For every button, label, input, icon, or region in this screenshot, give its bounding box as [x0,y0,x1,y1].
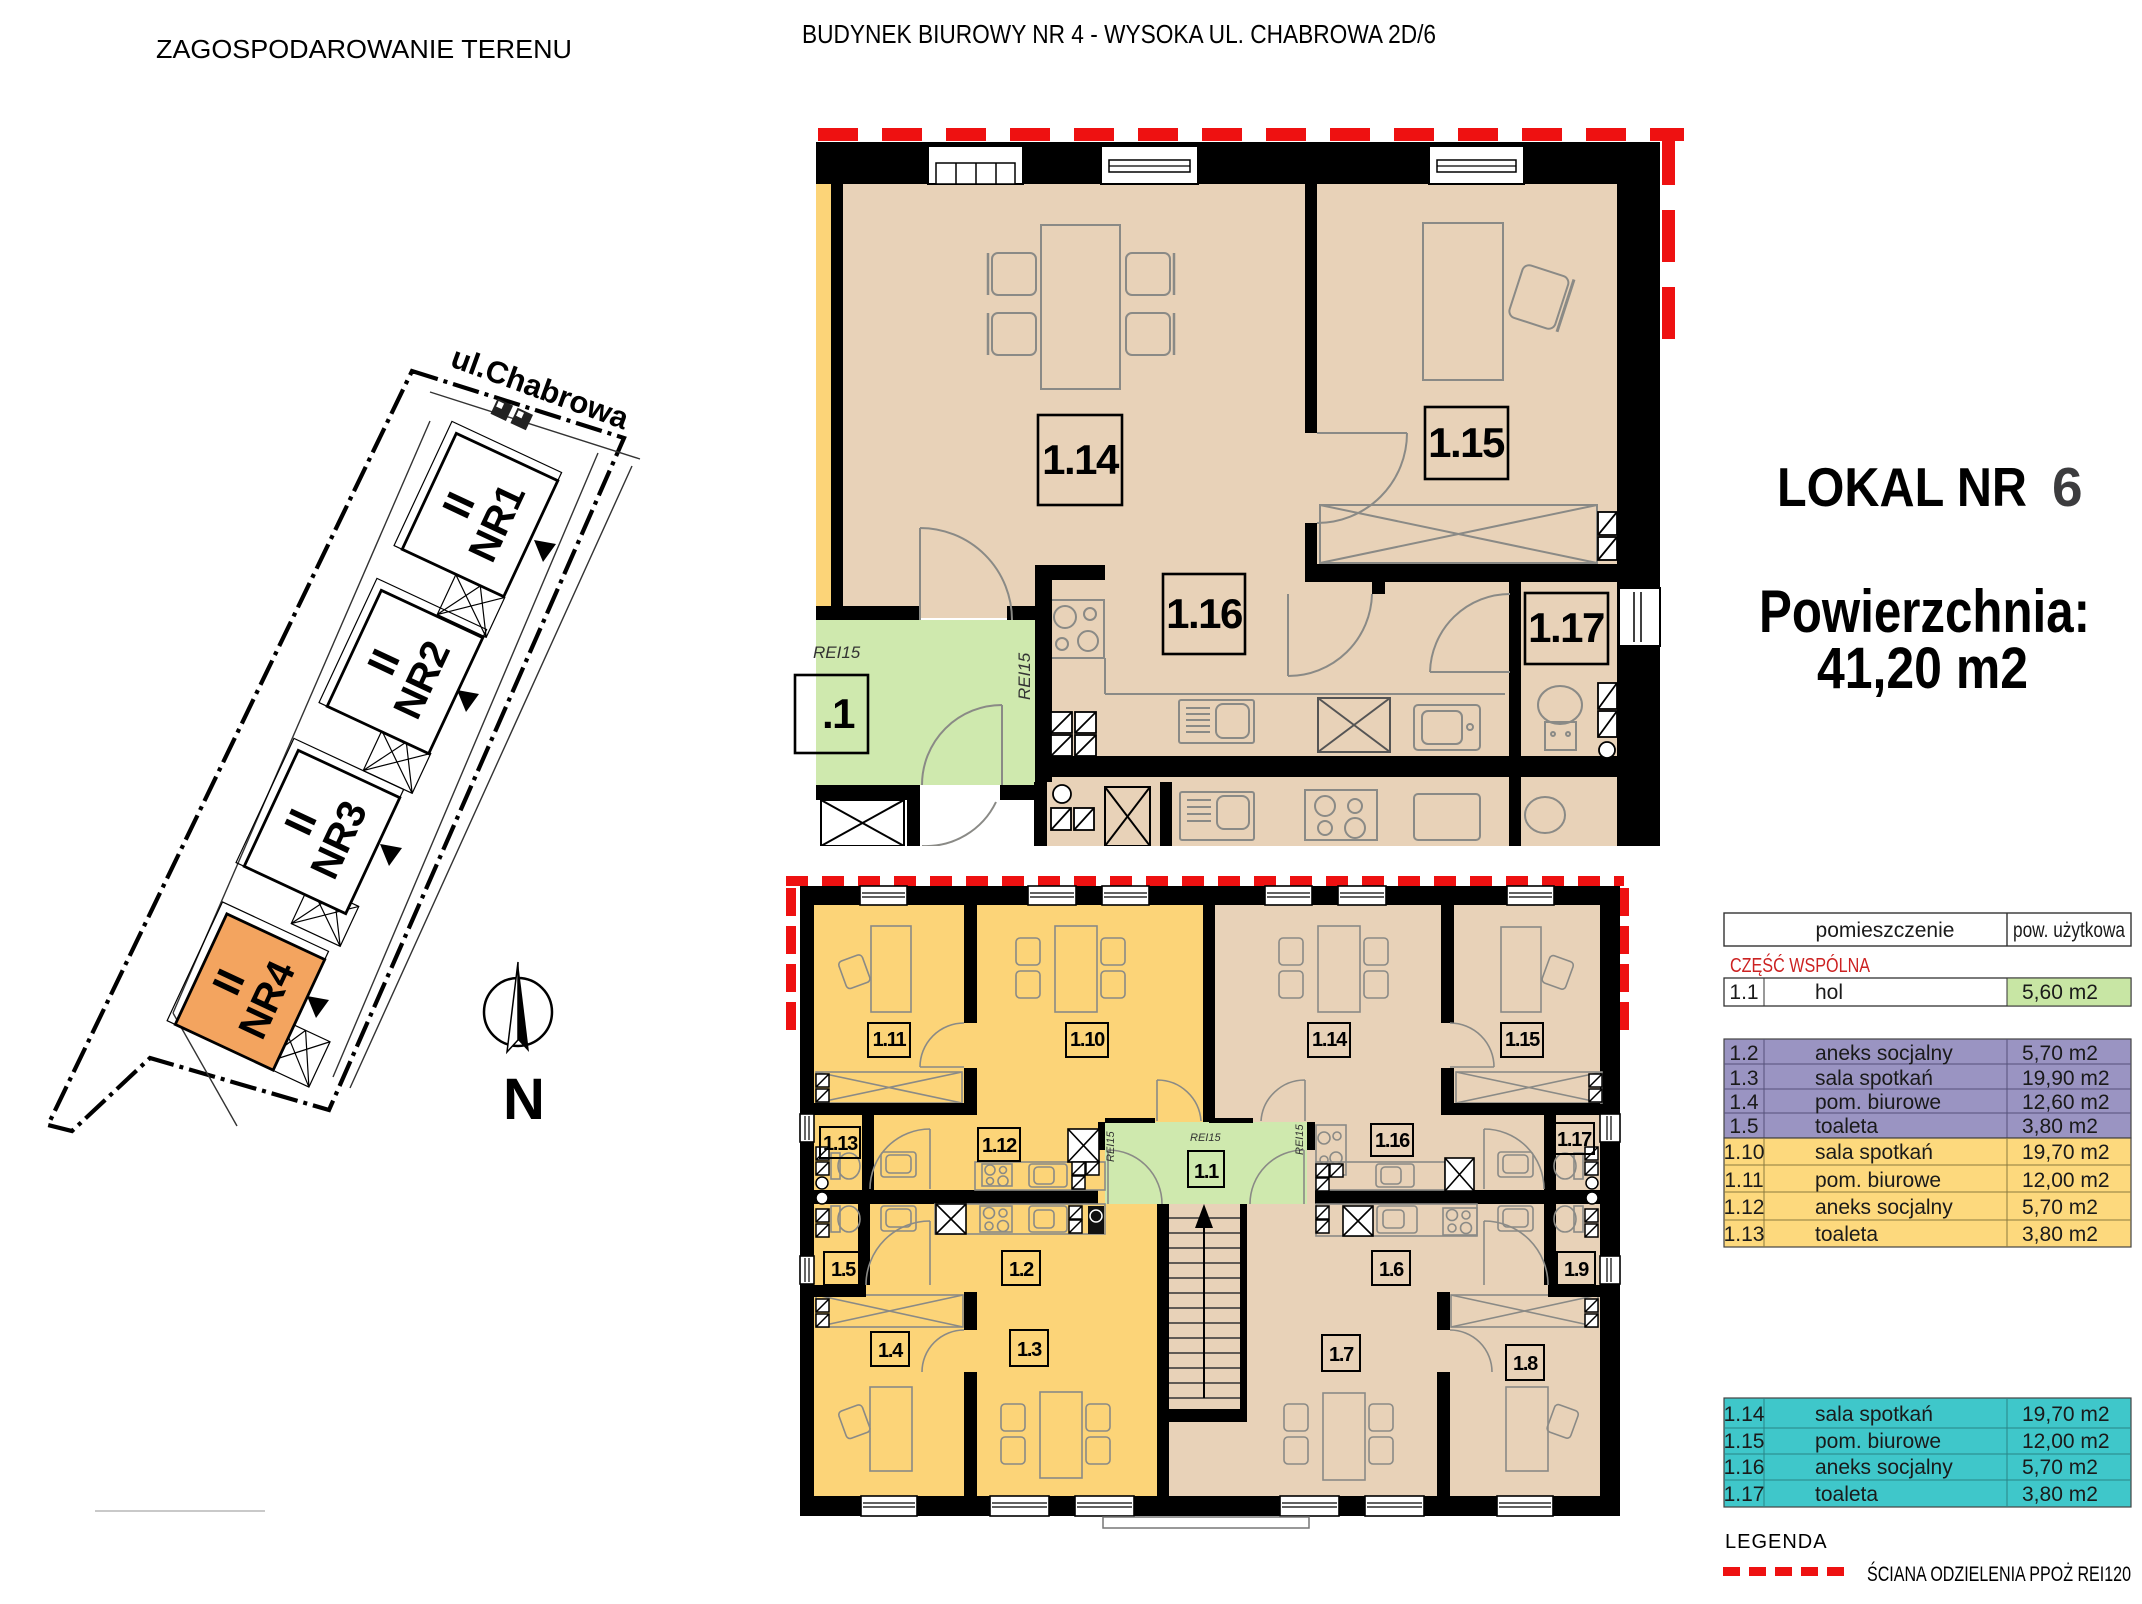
svg-text:1.15: 1.15 [1428,419,1505,466]
svg-text:1.17: 1.17 [1528,604,1604,651]
svg-text:pom. biurowe: pom. biurowe [1815,1430,1941,1453]
svg-text:19,70 m2: 19,70 m2 [2022,1403,2110,1426]
svg-text:.1: .1 [822,690,855,737]
svg-text:3,80 m2: 3,80 m2 [2022,1483,2098,1506]
svg-text:toaleta: toaleta [1815,1115,1878,1138]
svg-text:3,80 m2: 3,80 m2 [2022,1223,2098,1246]
svg-text:5,70 m2: 5,70 m2 [2022,1042,2098,1065]
svg-text:1.14: 1.14 [1312,1029,1348,1051]
svg-text:1.3: 1.3 [1017,1339,1042,1361]
svg-text:1.16: 1.16 [1724,1456,1765,1479]
svg-text:1.11: 1.11 [1724,1169,1763,1192]
svg-text:19,70 m2: 19,70 m2 [2022,1141,2110,1164]
svg-text:1.2: 1.2 [1729,1042,1758,1065]
svg-text:REI15: REI15 [813,643,861,662]
svg-text:REI15: REI15 [1190,1132,1221,1144]
svg-text:1.17: 1.17 [1724,1483,1765,1506]
svg-text:1.12: 1.12 [1724,1196,1765,1219]
svg-text:1.16: 1.16 [1166,590,1242,637]
svg-text:1.14: 1.14 [1042,436,1120,483]
svg-text:BUDYNEK BIUROWY NR 4 - WYSOKA: BUDYNEK BIUROWY NR 4 - WYSOKA UL. CHABRO… [802,19,1436,49]
svg-text:Powierzchnia:: Powierzchnia: [1759,578,2090,645]
svg-text:1.6: 1.6 [1379,1259,1404,1281]
svg-text:sala spotkań: sala spotkań [1815,1141,1933,1164]
svg-text:1.17: 1.17 [1557,1129,1592,1151]
svg-text:5,70 m2: 5,70 m2 [2022,1456,2098,1479]
svg-text:19,90 m2: 19,90 m2 [2022,1067,2110,1090]
svg-text:41,20 m2: 41,20 m2 [1817,636,2028,701]
svg-text:aneks socjalny: aneks socjalny [1815,1456,1953,1479]
svg-text:1.3: 1.3 [1729,1067,1758,1090]
svg-text:REI15: REI15 [1294,1124,1306,1155]
svg-text:N: N [503,1067,545,1132]
svg-text:sala spotkań: sala spotkań [1815,1403,1933,1426]
svg-text:1.12: 1.12 [982,1135,1017,1157]
svg-text:5,70 m2: 5,70 m2 [2022,1196,2098,1219]
svg-text:1.5: 1.5 [831,1259,856,1281]
svg-text:LEGENDA: LEGENDA [1725,1531,1828,1553]
svg-text:LOKAL NR: LOKAL NR [1777,456,2027,518]
svg-text:pom. biurowe: pom. biurowe [1815,1091,1941,1114]
svg-text:toaleta: toaleta [1815,1223,1878,1246]
svg-text:REI15: REI15 [1105,1131,1117,1162]
svg-text:1.14: 1.14 [1724,1403,1765,1426]
svg-text:1.10: 1.10 [1070,1029,1105,1051]
svg-text:1.13: 1.13 [1724,1223,1765,1246]
svg-text:hol: hol [1815,981,1843,1004]
svg-text:3,80 m2: 3,80 m2 [2022,1115,2098,1138]
svg-text:12,00 m2: 12,00 m2 [2022,1169,2110,1192]
svg-text:12,00 m2: 12,00 m2 [2022,1430,2110,1453]
svg-text:1.8: 1.8 [1513,1353,1538,1375]
svg-text:sala spotkań: sala spotkań [1815,1067,1933,1090]
svg-text:1.7: 1.7 [1329,1344,1354,1366]
svg-text:5,60 m2: 5,60 m2 [2022,981,2098,1004]
svg-text:CZĘŚĆ WSPÓLNA: CZĘŚĆ WSPÓLNA [1730,953,1871,977]
svg-text:REI15: REI15 [1015,652,1034,700]
svg-text:1.15: 1.15 [1724,1430,1765,1453]
svg-text:1.2: 1.2 [1009,1259,1034,1281]
svg-text:toaleta: toaleta [1815,1483,1878,1506]
svg-text:ZAGOSPODAROWANIE TERENU: ZAGOSPODAROWANIE TERENU [156,34,572,64]
svg-text:1.1: 1.1 [1729,981,1758,1004]
svg-text:1.11: 1.11 [873,1029,907,1051]
svg-text:ŚCIANA ODZIELENIA PPOŻ REI120: ŚCIANA ODZIELENIA PPOŻ REI120 [1867,1562,2131,1586]
svg-text:1.4: 1.4 [1729,1091,1759,1114]
svg-text:1.16: 1.16 [1375,1130,1410,1152]
svg-text:1.10: 1.10 [1724,1141,1765,1164]
svg-text:1.5: 1.5 [1729,1115,1758,1138]
svg-text:1.15: 1.15 [1505,1029,1540,1051]
svg-text:aneks socjalny: aneks socjalny [1815,1042,1953,1065]
svg-text:1.4: 1.4 [878,1340,904,1362]
svg-text:aneks socjalny: aneks socjalny [1815,1196,1953,1219]
svg-text:pomieszczenie: pomieszczenie [1816,919,1955,942]
svg-text:6: 6 [2052,456,2083,518]
svg-text:1.1: 1.1 [1194,1161,1219,1183]
svg-text:12,60 m2: 12,60 m2 [2022,1091,2110,1114]
svg-text:pom. biurowe: pom. biurowe [1815,1169,1941,1192]
svg-text:1.13: 1.13 [823,1133,858,1155]
svg-text:1.9: 1.9 [1564,1259,1589,1281]
svg-text:pow. użytkowa: pow. użytkowa [2013,919,2125,942]
